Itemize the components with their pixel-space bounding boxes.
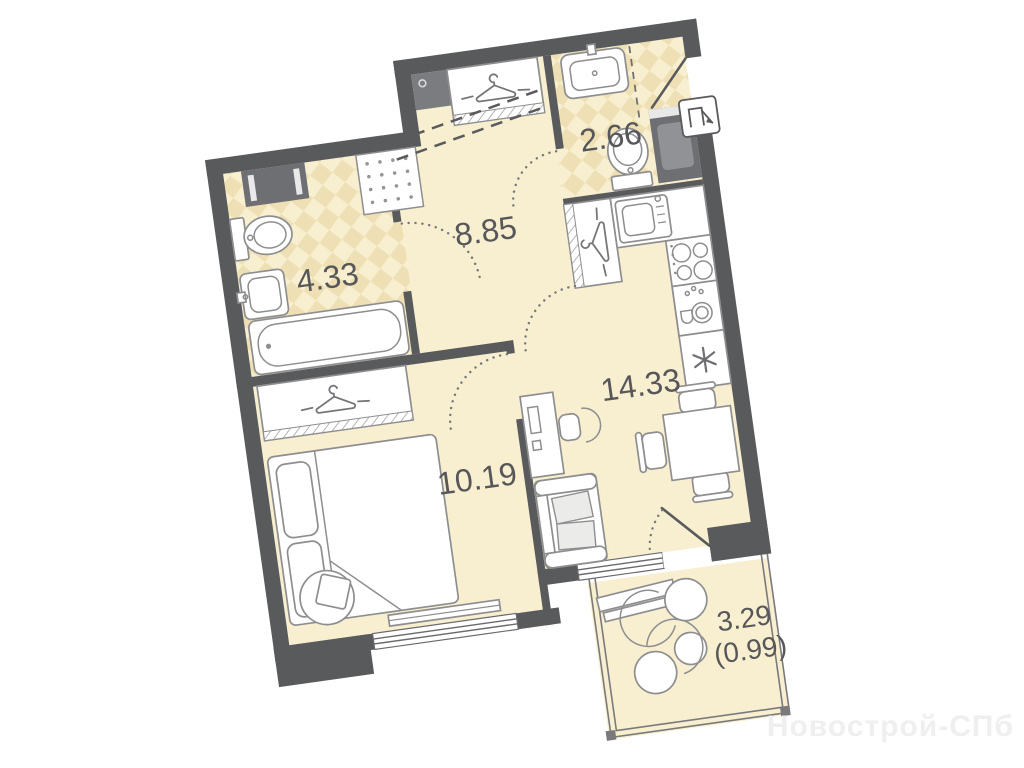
entrance-door-icon [678,96,720,138]
dishwasher-icon [672,280,724,336]
bed [267,434,459,626]
floor-plan: 8.85 4.33 2.66 14.33 10.19 3.29 (0.99) [0,0,1024,768]
ventilation-shaft [356,147,424,215]
kitchen-sink [615,194,672,243]
floor-plan-page: 8.85 4.33 2.66 14.33 10.19 3.29 (0.99) Н… [0,0,1024,768]
electrical-cabinet [411,70,452,111]
watermark: Новострой-СПб [767,710,1014,744]
hall-wardrobe [447,57,545,125]
fridge [679,330,731,390]
sofa [534,473,608,569]
